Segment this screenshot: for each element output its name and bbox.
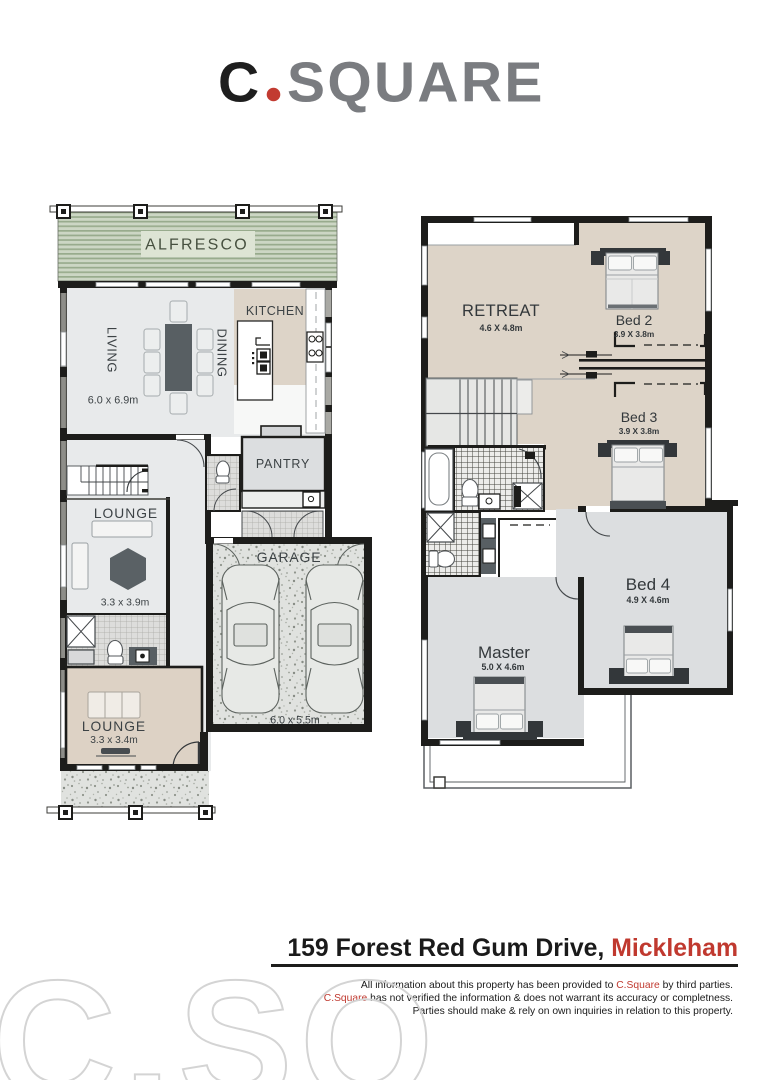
svg-text:PANTRY: PANTRY bbox=[256, 457, 310, 471]
svg-text:Master: Master bbox=[478, 643, 530, 662]
svg-text:6.0 x 5.5m: 6.0 x 5.5m bbox=[270, 715, 320, 727]
svg-text:KITCHEN: KITCHEN bbox=[246, 304, 304, 318]
svg-text:RETREAT: RETREAT bbox=[462, 302, 540, 320]
svg-text:4.6 X 4.8m: 4.6 X 4.8m bbox=[479, 323, 522, 333]
svg-text:5.0 X 4.6m: 5.0 X 4.6m bbox=[481, 662, 524, 672]
svg-text:GARAGE: GARAGE bbox=[257, 549, 322, 565]
svg-text:Parties should make & rely on: Parties should make & rely on own inquir… bbox=[413, 1006, 733, 1017]
svg-text:3.9 X 3.8m: 3.9 X 3.8m bbox=[614, 329, 655, 339]
svg-text:6.0 x 6.9m: 6.0 x 6.9m bbox=[88, 395, 138, 407]
svg-text:LOUNGE: LOUNGE bbox=[94, 506, 158, 521]
svg-text:LIVING: LIVING bbox=[105, 327, 120, 373]
svg-text:SQUARE: SQUARE bbox=[287, 51, 545, 115]
svg-text:C.SQ: C.SQ bbox=[0, 945, 441, 1080]
svg-text:Bed 4: Bed 4 bbox=[626, 575, 670, 594]
svg-text:LOUNGE: LOUNGE bbox=[82, 719, 146, 734]
svg-text:DINING: DINING bbox=[215, 328, 230, 377]
svg-text:Bed 3: Bed 3 bbox=[621, 409, 658, 425]
svg-text:3.9 X 3.8m: 3.9 X 3.8m bbox=[619, 426, 660, 436]
svg-text:4.9 X 4.6m: 4.9 X 4.6m bbox=[626, 595, 669, 605]
svg-text:3.3 x 3.4m: 3.3 x 3.4m bbox=[90, 735, 138, 746]
svg-text:3.3 x 3.9m: 3.3 x 3.9m bbox=[101, 598, 150, 609]
svg-text:C: C bbox=[218, 51, 259, 115]
svg-text:Bed 2: Bed 2 bbox=[616, 312, 653, 328]
svg-text:ALFRESCO: ALFRESCO bbox=[145, 237, 249, 254]
